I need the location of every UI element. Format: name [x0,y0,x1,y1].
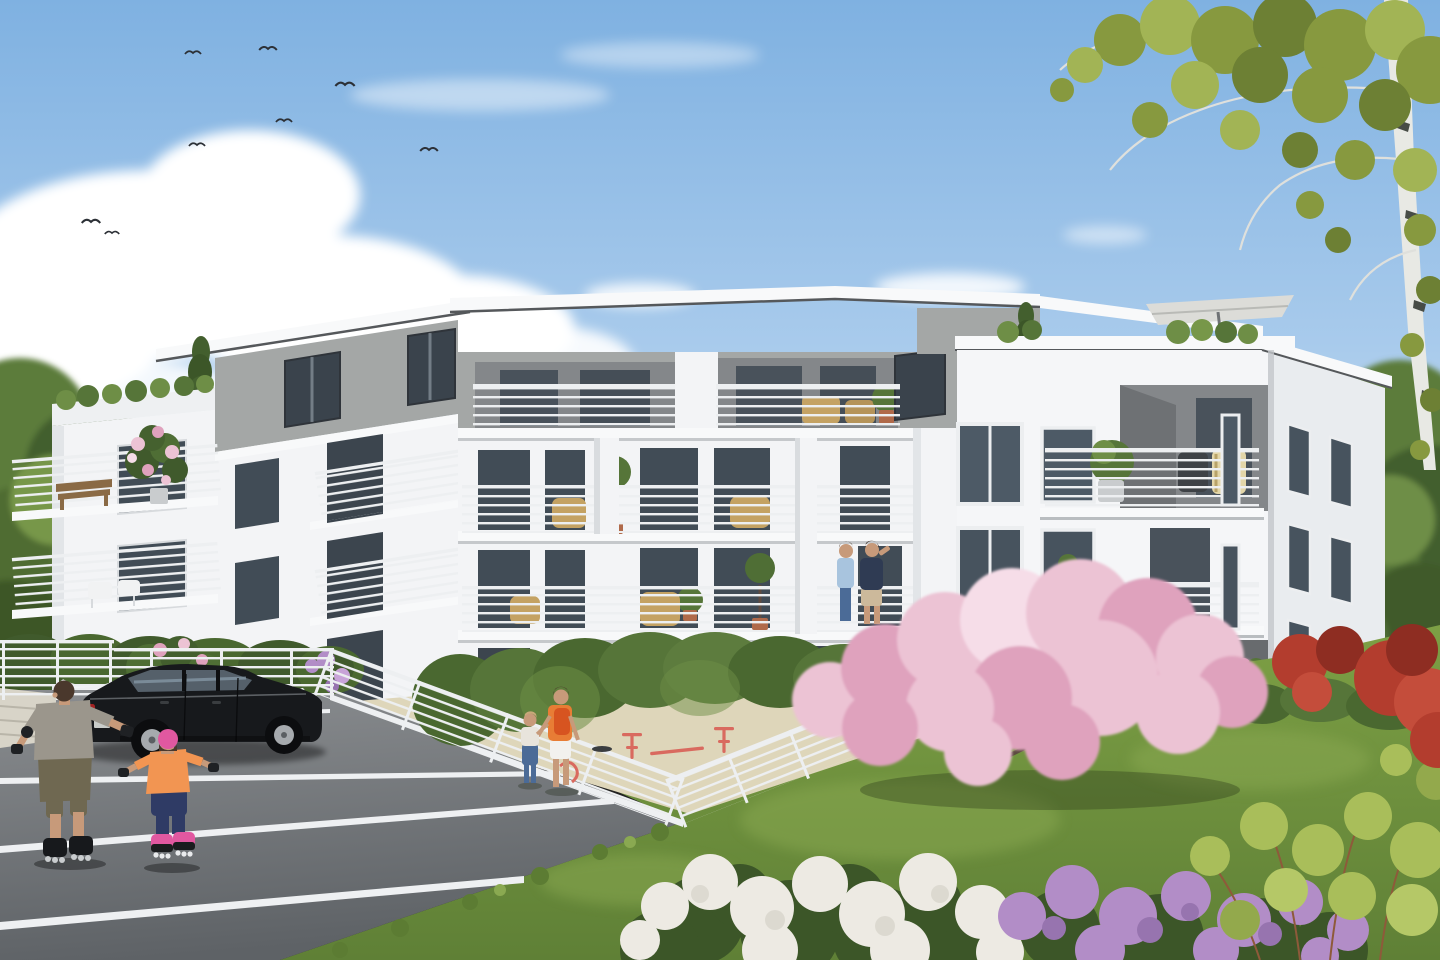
shadow [144,863,200,873]
head [54,681,75,702]
shadow [545,788,579,796]
scene-rendering: Architectural rendering — modern white a… [0,0,1440,960]
window [235,458,279,529]
wrist-guard [118,768,129,777]
pink-helmet [158,729,178,749]
floor-slab [458,428,917,438]
orange-top [146,749,190,794]
floor3-railing [462,485,917,533]
skateboard [592,746,612,752]
window [895,350,945,420]
elbow-pad [21,726,33,738]
penthouse-pier [675,352,718,430]
shadow [518,783,542,790]
planter [150,488,168,504]
cargo-pants [38,753,92,802]
window [235,556,279,625]
wrist-guard [11,744,23,754]
shadow [34,858,106,870]
rendering-stage: Architectural rendering — modern white a… [0,0,1440,960]
car-front-wheel [265,716,303,754]
wrist-guard [208,763,219,772]
t-shirt [34,700,94,760]
